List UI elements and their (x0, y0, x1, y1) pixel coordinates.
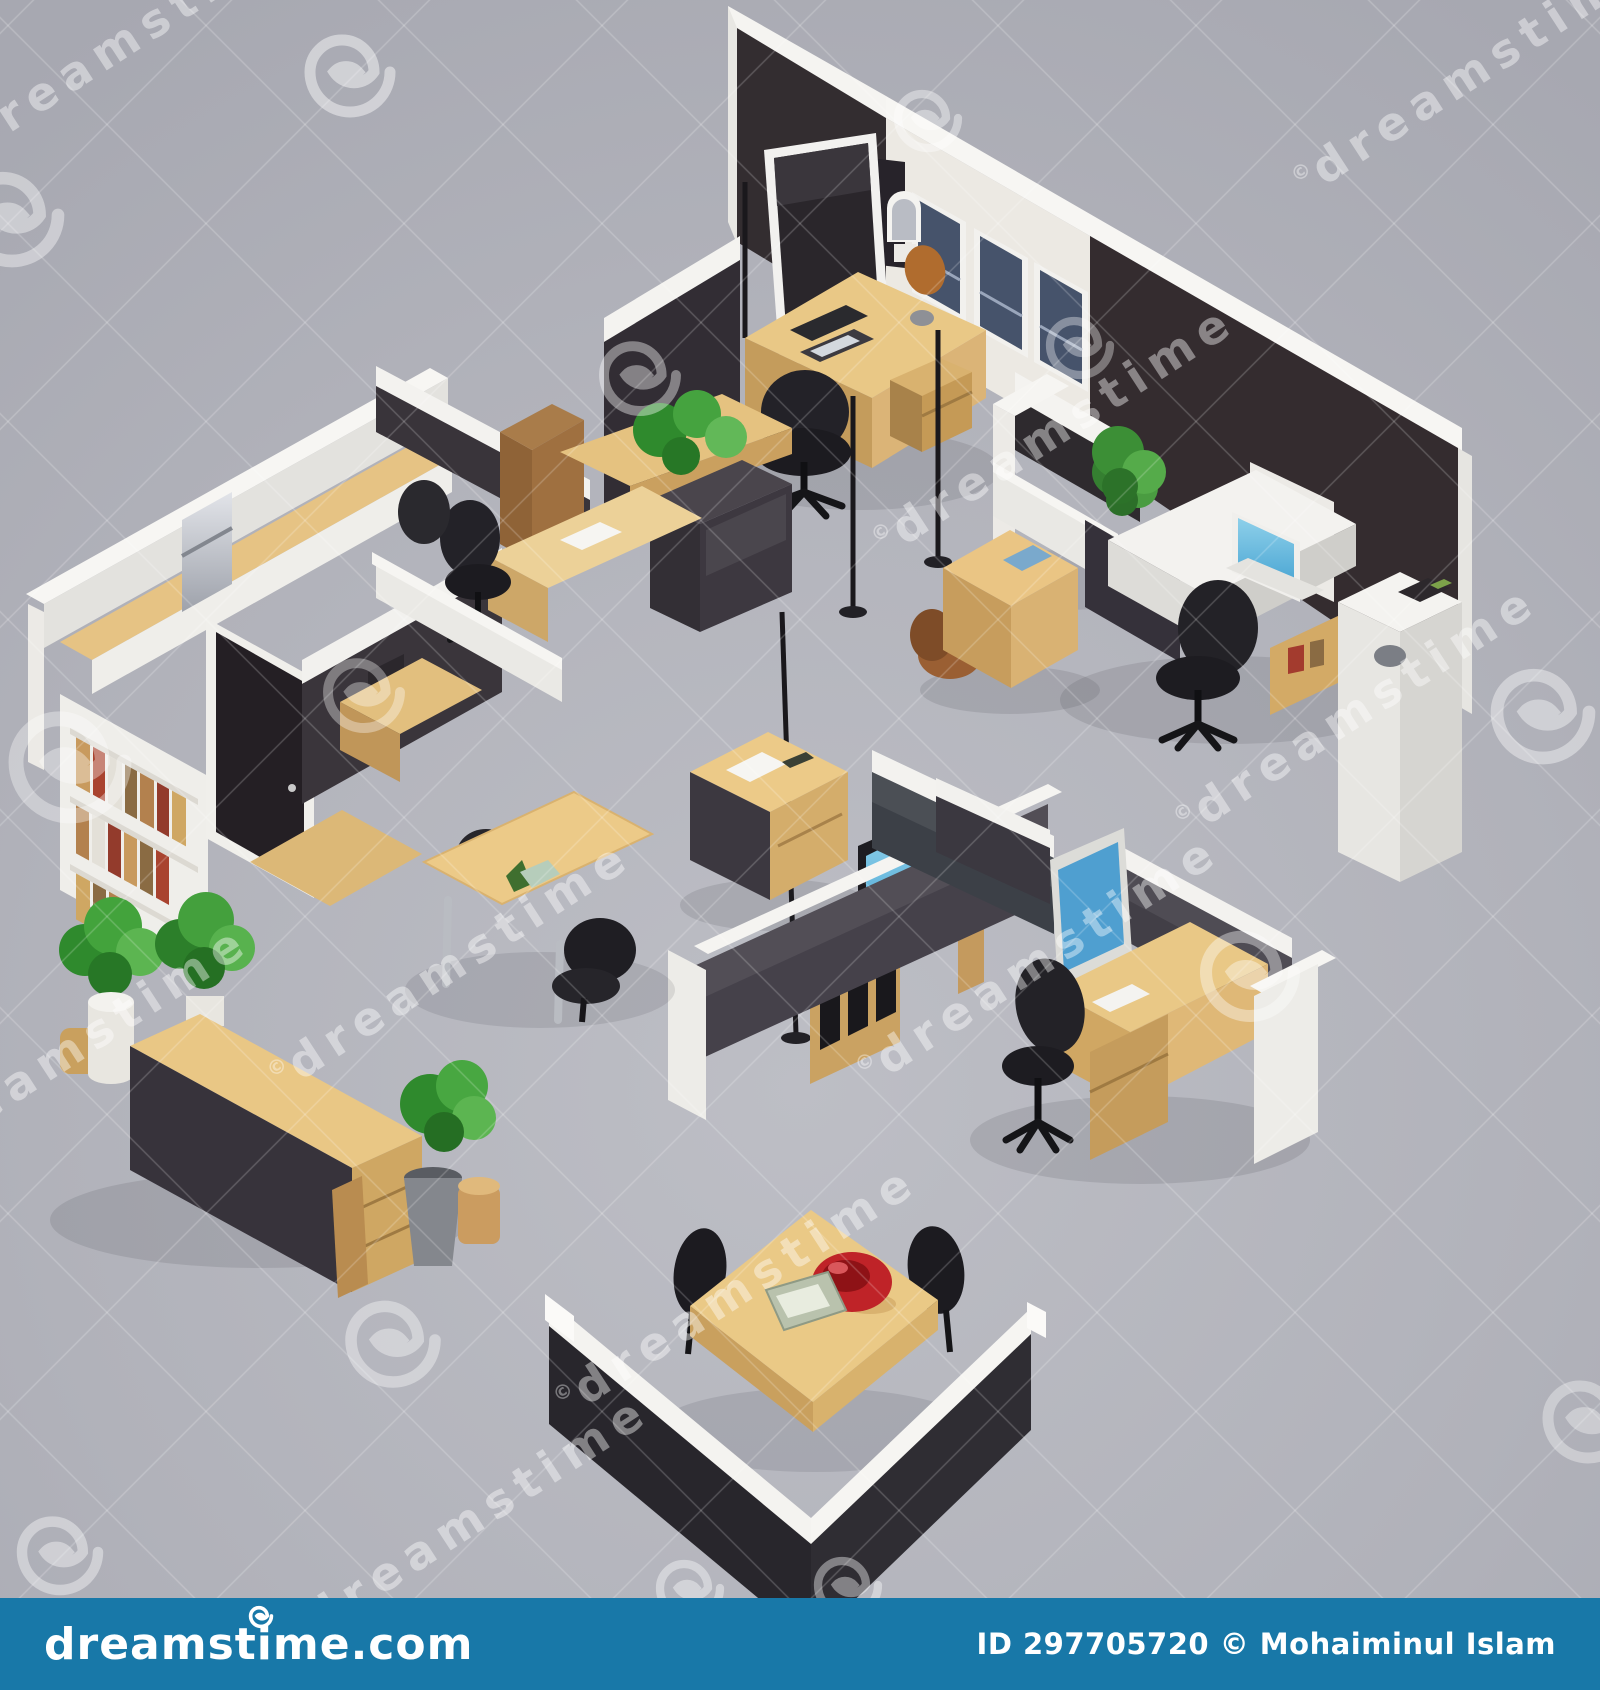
door-handle (288, 784, 296, 792)
wall-end-cap (728, 6, 737, 244)
dreamstime-logo: dreamstime.com (44, 1619, 473, 1670)
tan-stool (458, 1177, 500, 1244)
upper-chair (398, 480, 450, 544)
end-wall-face (1254, 964, 1318, 1164)
stock-photo-preview: ©dreamstime ©dreamstime ©dreamstime ©dre… (0, 0, 1600, 1690)
image-credit: ID 297705720 © Mohaiminul Islam (977, 1627, 1556, 1661)
scene-svg (0, 0, 1600, 1600)
leaning-folder (332, 1176, 368, 1298)
gray-mouse (1374, 645, 1406, 667)
footer-bar: dreamstime.com ID 297705720 © Mohaiminul… (0, 1598, 1600, 1690)
partition-end-panel (668, 950, 706, 1120)
dreamstime-spiral-icon (248, 1603, 274, 1629)
mouse (910, 310, 934, 326)
left-wall-edge (28, 604, 44, 770)
office-render-area: ©dreamstime ©dreamstime ©dreamstime ©dre… (0, 0, 1600, 1600)
white-tower (1338, 572, 1462, 882)
